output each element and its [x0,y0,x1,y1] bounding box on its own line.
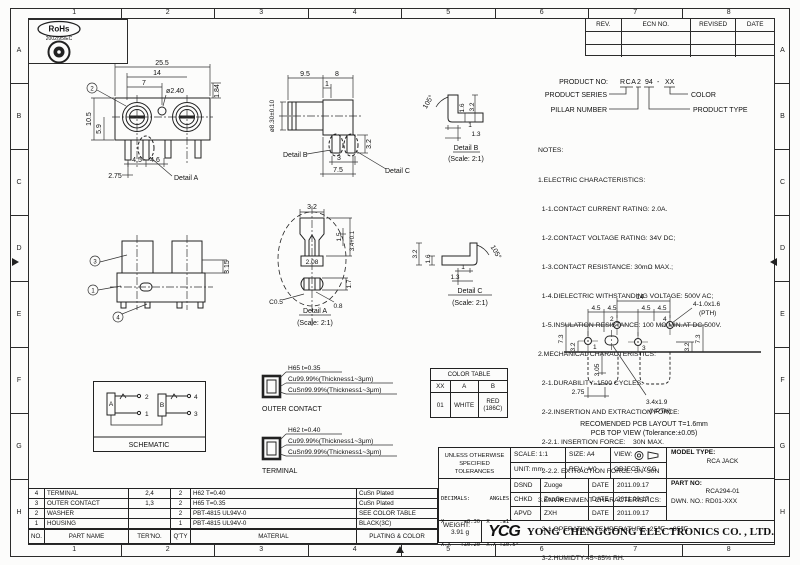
pcb-layout-drawing: 14 4.5 4.5 4.5 4.5 7.3 3.2 3.2 7.3 3.05 … [556,292,794,442]
terminal-2-label: 2 [145,394,149,401]
zone-label: A [775,18,790,84]
company-logo: YCG [488,523,520,541]
zone-label: 1 [28,545,122,556]
zone-label: E [10,282,28,348]
revision-header-row: REV. ECN NO. REVISED DATE [586,19,774,32]
material-caption: OUTER CONTACT [262,406,322,413]
cross-section-icon [263,376,280,397]
center-marker-left [12,258,19,266]
terminal-3-label: 3 [194,411,198,418]
rev-cell: REV.: A/0 [566,463,611,478]
part-qty: 2 [171,499,191,508]
part-plating: BLACK(3C) [357,519,437,528]
revised-header: REVISED [691,19,737,31]
empty-cell [691,45,737,57]
header-qty: Q'TY [171,530,191,543]
zone-label: 1 [28,8,122,18]
part-name: OUTER CONTACT [45,499,129,508]
part-no-label: PART NO: [671,480,774,487]
front-view-drawing: 25.5 14 7 ø2.40 1.84 10.5 5.9 4.5 4.6 2.… [80,55,280,205]
company-name: YONG CHENGGONG ELECTRONICS CO. , LTD. [527,526,774,538]
model-type-value: RCA JACK [671,458,774,465]
revision-empty-row [586,32,774,45]
color-b-line1: RED [486,398,499,405]
npth-spec: 3.4x1.9 [646,399,668,406]
pcb-hole-2: 2 [610,316,614,323]
material-line: H65 t=0.35 [288,365,321,372]
part-no: 1 [29,519,45,528]
dim-105deg: 105° [489,244,503,261]
color-b-value: RED (186C) [479,393,507,417]
dim-8: 8 [335,71,339,78]
empty-cell [736,32,774,44]
detail-c-drawing: 3.2 1.6 105° 1 1.3 Detail C (Scale: 2:1) [408,225,520,325]
pcb-hole-3: 3 [642,345,646,352]
dim-4-5: 4.5 [657,305,666,312]
product-no-label: PRODUCT NO: [559,79,608,86]
note-line: 1-1.CONTACT CURRENT RATING: 2.0A. [538,205,778,215]
dim-1-7: 1.7 [346,279,353,288]
material-line: CuSn99.99%(Thickness1~3μm) [288,449,381,456]
part-material: H65 T=0.35 [191,499,357,508]
part-plating: CuSn Plated [357,499,437,508]
dim-3-2: 3.2 [366,139,373,149]
size-cell: SIZE: A4 [566,448,611,462]
dim-9-5: 9.5 [300,71,310,78]
signature-grid: DSND Zuoge DATE 2011.09.17 CHKD ZuoGe DA… [511,479,666,520]
part-name: HOUSING [45,519,129,528]
zone-label: 8 [683,8,776,18]
rev-header: REV. [586,19,622,31]
part-material: PBT-4815 UL94V-0 [191,509,357,518]
dash: - [657,79,660,86]
detail-b-scale: (Scale: 2:1) [448,156,484,163]
zone-label: B [10,84,28,150]
signature-row: APVD ZXH DATE 2011.09.17 [511,507,666,521]
tolerance-line: X.X :±0.20 X.X :±0.5° [441,542,510,550]
zone-label: 2 [122,8,216,18]
empty-cell [622,45,691,57]
part-terno: 1,3 [129,499,171,508]
ecn-header: ECN NO. [622,19,691,31]
unit-row: UNIT: mm REV.: A/0 OBJECT: YCG [511,463,666,478]
zone-label: 3 [215,8,309,18]
empty-cell [622,32,691,44]
tolerance-values: DECIMALS: ANGLES: X :±0.30 X :±1° X.X :±… [439,479,511,520]
part-no: 4 [29,489,45,498]
drawing-no: DWN. NO.: RD01-XXX [671,498,774,505]
zone-label: 6 [496,8,590,18]
weight-label: WEIGHT: [443,522,481,529]
zone-label: H [10,480,28,545]
dim-1: 1 [325,81,329,88]
balloon-2: 2 [90,87,94,93]
empty-cell [586,45,622,57]
material-line: H62 t=0.40 [288,427,321,434]
header-no: NO. [29,530,45,543]
dim-3-2: 3.2 [307,204,317,211]
detail-c-callout: Detail C [385,168,410,175]
signature-row: CHKD ZuoGe DATE 2011.09.17 [511,493,666,507]
zone-label: 2 [122,545,216,556]
color-label: COLOR [691,92,716,99]
scale-row: SCALE: 1:1 SIZE: A4 VIEW: [511,448,666,463]
zone-label: C [10,150,28,216]
schematic-caption: SCHEMATIC [129,442,170,449]
dim-7-5: 7.5 [333,167,343,174]
top-view-drawing: 3 1 4 3.15 [85,230,240,345]
note-line: 3-2.HUMIDTY:45~85% RH. [538,554,778,564]
date-value: 2011.09.17 [614,479,666,492]
dim-4-5: 4.5 [607,305,616,312]
frame-left-zones: A B C D E F G H [10,18,28,545]
product-series-value: RCA [620,79,637,86]
color-a-value: WHITE [451,393,479,417]
product-type-value: 94 [645,79,653,86]
terminal-4-label: 4 [194,394,198,401]
dim-1-3: 1.3 [471,131,480,138]
part-material: PBT-4815 UL94V-0 [191,519,357,528]
date-value: 2011.09.17 [614,493,666,506]
tolerance-header: UNLESS OTHERWISE SPECIFIED TOLERANCES [439,448,511,478]
object-cell: OBJECT: YCG [611,463,666,478]
pillar-number-value: 2 [637,79,641,86]
frame-top-zones: 1 2 3 4 5 6 7 8 [28,8,775,18]
part-no-zone: PART NO: RCA294-01 DWN. NO.: RD01-XXX [666,479,774,520]
dim-1-6: 1.6 [425,254,432,263]
detail-a-callout: Detail A [174,175,198,182]
switch-a-label: A [109,401,114,408]
dim-10-5: 10.5 [86,112,93,126]
cross-section-icon [263,438,280,459]
detail-b-drawing: 105° 1.6 3.2 1 1.3 Detail B (Scale: 2:1) [420,85,525,180]
zone-label: F [10,348,28,414]
title-block-bottom: WEIGHT: 3.91 g YCG YONG CHENGGONG ELECTR… [439,521,774,542]
detail-c-title: Detail C [458,288,483,295]
view-cell: VIEW: [611,448,666,462]
part-plating: SEE COLOR TABLE [357,509,437,518]
title-block-top: UNLESS OTHERWISE SPECIFIED TOLERANCES SC… [439,448,774,479]
detail-a-title: Detail A [303,308,327,315]
balloon-3: 3 [93,260,97,266]
part-row: 1 HOUSING 1 PBT-4815 UL94V-0 BLACK(3C) [29,519,437,529]
dim-1-84: 1.84 [214,84,221,98]
decimals-angles-header: DECIMALS: ANGLES: [441,496,510,504]
empty-cell [691,32,737,44]
dim-0-8: 0.8 [333,303,342,310]
color-code-value: XX [665,79,675,86]
tolerance-header-line1: UNLESS OTHERWISE [439,452,510,460]
zone-label: G [10,414,28,480]
side-view-drawing: 9.5 8 1 ø8.30±0.10 3 7.5 3.2 Detail B De… [265,62,425,182]
part-terno [129,519,171,528]
color-table-title: COLOR TABLE [431,369,507,381]
dim-3-4: 3.4+0.1 [350,230,356,251]
dim-4-6: 4.6 [150,157,160,164]
balloon-1: 1 [91,289,95,295]
tolerance-header-line2: SPECIFIED TOLERANCES [439,460,510,476]
dim-14: 14 [153,70,161,77]
dim-2-75: 2.75 [108,173,122,180]
zone-label: A [10,18,28,84]
color-code: 01 [431,393,451,417]
product-numbering-legend: PRODUCT NO: RCA 2 94 - XX PRODUCT SERIES… [545,70,775,120]
color-table: COLOR TABLE XX A B 01 WHITE RED (186C) [430,368,508,418]
date-label: DATE [589,493,614,506]
weight-value: 3.91 g [443,529,481,536]
model-type-label: MODEL TYPE: [671,449,774,456]
parts-table: 4 TERMINAL 2,4 2 H62 T=0.40 CuSn Plated … [28,488,438,544]
dim-3: 3 [337,155,341,162]
rca-jack-icon [49,42,70,63]
dim-1-6: 1.6 [459,103,466,112]
col-b: B [479,381,507,392]
part-row: 4 TERMINAL 2,4 2 H62 T=0.40 CuSn Plated [29,489,437,499]
name-chkd: ZuoGe [541,493,589,506]
product-type-label: PRODUCT TYPE [693,107,748,114]
role-chkd: CHKD [511,493,541,506]
note-line: 1-3.CONTACT RESISTANCE: 30mΩ MAX.; [538,263,778,273]
material-line: Cu99.99%(Thickness1~3μm) [288,438,373,445]
color-b-line2: (186C) [483,405,502,412]
zone-label: 4 [309,545,403,556]
col-xx: XX [431,381,451,392]
parts-header-row: NO. PART NAME TER'NO. Q'TY MATERIAL PLAT… [29,529,437,543]
date-header: DATE [736,19,774,31]
detail-a-scale: (Scale: 2:1) [297,320,333,327]
unit-cell: UNIT: mm [511,463,566,478]
zone-label: 3 [215,545,309,556]
dim-7-3: 7.3 [558,334,565,343]
part-qty: 1 [171,519,191,528]
part-qty: 2 [171,509,191,518]
material-caption: TERMINAL [262,468,298,475]
material-line: CuSn99.99%(Thickness1~3μm) [288,387,381,394]
header-plating: PLATING & COLOR [357,530,437,543]
empty-cell [586,32,622,44]
part-terno [129,509,171,518]
note-line: 1.ELECTRIC CHARACTERISTICS: [538,176,778,186]
signature-row: DSND Zuoge DATE 2011.09.17 [511,479,666,493]
detail-b-callout: Detail B [283,152,308,159]
date-label: DATE [589,507,614,521]
part-terno: 2,4 [129,489,171,498]
dim-dia-8-30: ø8.30±0.10 [269,99,276,132]
part-no: 2 [29,509,45,518]
revision-table: REV. ECN NO. REVISED DATE [585,18,775,56]
dim-4-5: 4.5 [641,305,650,312]
dim-3-2: 3.2 [412,249,419,258]
part-no-value: RCA294-01 [671,488,774,495]
dim-2-08-boxed: 2.08 [306,259,319,266]
title-block-mid: DECIMALS: ANGLES: X :±0.30 X :±1° X.X :±… [439,479,774,521]
detail-c-scale: (Scale: 2:1) [452,300,488,307]
part-row: 2 WASHER 2 PBT-4815 UL94V-0 SEE COLOR TA… [29,509,437,519]
dim-14: 14 [636,294,644,301]
schematic-diagram: A B 2 1 4 3 SCHEMATIC [93,381,206,452]
detail-b-title: Detail B [454,145,479,152]
dim-105deg: 105° [421,94,435,111]
pillar-number-label: PILLAR NUMBER [551,107,607,114]
npth-note: (NPTH) [649,408,671,415]
dim-3-05: 3.05 [594,363,601,376]
name-apvd: ZXH [541,507,589,521]
material-line: Cu99.99%(Thickness1~3μm) [288,376,373,383]
zone-label: 5 [402,8,496,18]
part-name: WASHER [45,509,129,518]
dim-3-2: 3.2 [684,342,691,351]
dim-4-5: 4.5 [591,305,600,312]
dim-7: 7 [142,80,146,87]
weight-zone: WEIGHT: 3.91 g [439,521,482,542]
view-label: VIEW: [614,448,632,462]
zone-label: 4 [309,8,403,18]
part-row: 3 OUTER CONTACT 1,3 2 H65 T=0.35 CuSn Pl… [29,499,437,509]
balloon-4: 4 [116,316,120,322]
dim-3-15: 3.15 [224,260,231,274]
scale-grid: SCALE: 1:1 SIZE: A4 VIEW: UNIT: mm REV.:… [511,448,666,478]
dim-dia-2-40: ø2.40 [166,88,184,95]
name-dsnd: Zuoge [541,479,589,492]
dim-25-5: 25.5 [155,60,169,67]
part-material: H62 T=0.40 [191,489,357,498]
zone-label: D [10,216,28,282]
dim-2-75: 2.75 [572,389,585,396]
pth-spec: 4-1.0x1.6 [693,301,720,308]
col-a: A [451,381,479,392]
empty-cell [736,45,774,57]
part-name: TERMINAL [45,489,129,498]
zone-label: 7 [589,8,683,18]
scale-cell: SCALE: 1:1 [511,448,566,462]
header-terno: TER'NO. [129,530,171,543]
terminal-1-label: 1 [145,411,149,418]
pcb-caption-2: PCB TOP VIEW (Tolerance:±0.05) [591,430,698,437]
dim-1: 1 [468,122,472,129]
role-dsnd: DSND [511,479,541,492]
role-apvd: APVD [511,507,541,521]
switch-b-label: B [160,402,164,409]
third-angle-projection-icon [634,450,660,461]
date-label: DATE [589,479,614,492]
dim-7-3: 7.3 [695,334,702,343]
revision-empty-row [586,45,774,57]
center-marker-bottom [396,546,404,553]
dim-5-9: 5.9 [96,124,103,134]
dim-3-2: 3.2 [469,102,476,111]
part-plating: CuSn Plated [357,489,437,498]
part-no: 3 [29,499,45,508]
color-table-header: XX A B [431,381,507,393]
pcb-caption-1: RECOMENDED PCB LAYOUT T=1.6mm [580,421,708,428]
header-part-name: PART NAME [45,530,129,543]
pcb-hole-1: 1 [593,344,597,351]
pcb-hole-4: 4 [663,316,667,323]
dim-1: 1 [461,264,465,271]
dim-c0-5: C0.5 [269,299,283,306]
company-zone: YCG YONG CHENGGONG ELECTRONICS CO. , LTD… [482,521,774,542]
detail-a-drawing: 3.2 1.5 3.4+0.1 2.08 1.7 0.8 C0.5 Detail… [268,198,403,338]
title-block: UNLESS OTHERWISE SPECIFIED TOLERANCES SC… [438,447,775,543]
part-qty: 2 [171,489,191,498]
dim-4-5: 4.5 [132,157,142,164]
color-table-row: 01 WHITE RED (186C) [431,393,507,417]
notes-title: NOTES: [538,146,778,156]
header-material: MATERIAL [191,530,357,543]
pth-note: (PTH) [699,310,716,317]
dim-3-2: 3.2 [570,342,577,351]
engineering-drawing-sheet: 1 2 3 4 5 6 7 8 1 2 3 4 5 6 7 8 A B C D … [0,0,800,565]
model-type-zone: MODEL TYPE: RCA JACK [666,448,774,478]
outer-contact-material: H65 t=0.35 Cu99.99%(Thickness1~3μm) CuSn… [260,362,435,416]
terminal-material: H62 t=0.40 Cu99.99%(Thickness1~3μm) CuSn… [260,424,435,478]
note-line: 1-2.CONTACT VOLTAGE RATING: 34V DC; [538,234,778,244]
dim-1-3: 1.3 [450,274,459,281]
dim-1-5: 1.5 [336,232,343,241]
date-value: 2011.09.17 [614,507,666,521]
product-series-label: PRODUCT SERIES [545,92,607,99]
rohs-text: RoHs [49,25,70,34]
